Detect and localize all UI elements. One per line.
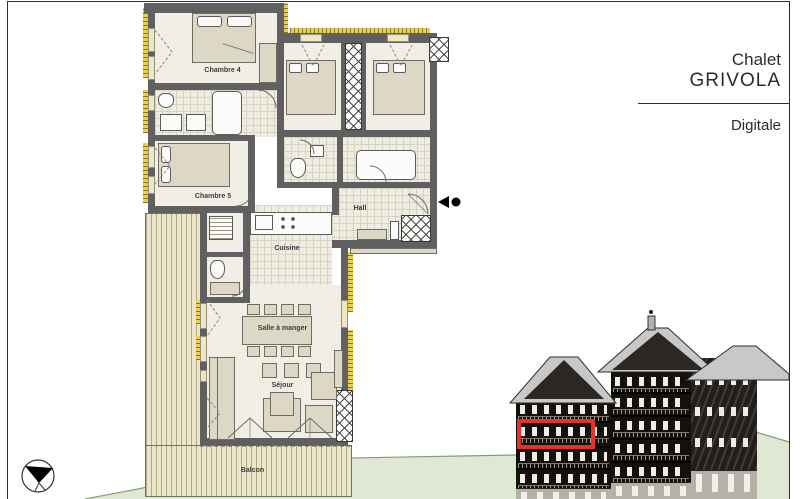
wall <box>148 83 284 90</box>
wall <box>207 252 250 257</box>
elevation-floor-row <box>516 468 611 488</box>
window <box>148 28 155 52</box>
kitchen-sink <box>255 215 273 230</box>
gable-window <box>564 374 578 392</box>
wall <box>284 182 437 188</box>
pillow <box>161 166 171 183</box>
terrain-fill-right <box>756 432 789 499</box>
chair <box>281 304 294 315</box>
chair <box>247 304 260 315</box>
pillow <box>227 16 252 27</box>
sofa <box>209 357 235 440</box>
window <box>200 303 207 329</box>
wall <box>284 130 437 137</box>
wall <box>337 137 343 188</box>
bathtub <box>212 91 242 135</box>
chair <box>281 346 294 357</box>
balcony-railing <box>613 432 689 437</box>
gable-window <box>641 345 654 365</box>
balcony-deck-left <box>145 213 202 447</box>
elevation-ground-floor <box>611 482 691 499</box>
wall <box>200 213 207 445</box>
chalet-title-line2: GRIVOLA <box>600 70 781 92</box>
washbasin <box>160 114 182 131</box>
apartment-name: Digitale <box>600 117 781 134</box>
elevation-floor-row <box>611 461 691 482</box>
wall <box>332 188 339 215</box>
window <box>148 95 155 111</box>
window-band <box>615 398 687 407</box>
page-border-top <box>7 1 790 2</box>
shower <box>209 216 233 240</box>
armchair <box>305 405 333 433</box>
ground-windows <box>616 486 686 496</box>
gable-window <box>657 345 670 365</box>
window <box>148 56 155 80</box>
balcony-railing <box>613 409 689 414</box>
wall <box>200 297 250 303</box>
window-band <box>615 421 687 430</box>
elevation-floor-row <box>611 438 691 461</box>
window-band <box>520 474 607 483</box>
chair <box>298 304 311 315</box>
window <box>341 300 348 328</box>
toilet <box>290 158 306 178</box>
window-band <box>695 438 753 447</box>
ground-windows <box>521 492 606 499</box>
wall <box>248 135 255 212</box>
room-label-salle-a-manger: Salle à manger <box>245 325 320 332</box>
window <box>148 176 155 194</box>
insulation-strip <box>284 3 288 33</box>
stove-burners <box>278 215 298 231</box>
window-band <box>615 377 687 386</box>
window-band <box>520 405 607 414</box>
title-divider <box>638 103 789 104</box>
terrain-line-right <box>756 432 789 442</box>
window-band <box>520 452 607 461</box>
pillow <box>289 63 302 73</box>
page-border-left <box>7 1 8 499</box>
chimney-finial <box>649 310 653 314</box>
bathtub <box>356 150 416 180</box>
stool <box>262 363 277 378</box>
page-border-right <box>789 1 790 499</box>
highlight-rectangle <box>517 419 595 449</box>
elevation-floor-row <box>516 446 611 468</box>
chair <box>247 346 260 357</box>
shaft-hatch <box>429 37 449 62</box>
tv-sideboard <box>334 350 343 388</box>
washbasin <box>310 145 324 157</box>
elevation-ground-floor <box>516 488 611 499</box>
room-label-chambre5: Chambre 5 <box>178 193 248 200</box>
pillow <box>197 16 222 27</box>
wall <box>148 135 255 141</box>
pillow <box>161 146 171 163</box>
room-label-cuisine: Cuisine <box>262 245 312 252</box>
room-label-hall: Hall <box>345 205 375 212</box>
elevation-floor-row <box>611 415 691 438</box>
gable-window <box>546 374 560 392</box>
elevation-ground-floor <box>691 470 757 499</box>
pillow <box>306 63 319 73</box>
wall <box>362 43 366 130</box>
wall <box>430 33 437 248</box>
window <box>300 34 322 42</box>
room-label-sejour: Séjour <box>255 382 310 389</box>
window <box>387 34 409 42</box>
window <box>148 146 155 168</box>
chair <box>264 346 277 357</box>
entrance-marker <box>438 196 461 208</box>
chimney <box>648 316 655 330</box>
wall <box>144 3 284 13</box>
elevation-side-wall <box>691 358 757 470</box>
room-label-balcon: Balcon <box>225 467 280 474</box>
window-band <box>615 444 687 453</box>
window <box>200 336 207 362</box>
north-arrow-icon <box>22 460 54 492</box>
shaft-hatch <box>345 43 362 130</box>
chimney-hatch <box>336 390 353 442</box>
wall <box>148 206 255 213</box>
wall <box>243 212 250 302</box>
wall <box>277 3 284 188</box>
hall-cabinet <box>390 221 399 240</box>
washing-machine <box>186 114 206 131</box>
window-band <box>695 376 753 385</box>
elevation-floor-row <box>516 399 611 421</box>
chalet-title-line1: Chalet <box>600 50 781 70</box>
stool <box>284 363 299 378</box>
toilet <box>210 260 225 279</box>
pillow <box>393 63 406 73</box>
pillow <box>376 63 389 73</box>
hall-bench <box>357 229 387 240</box>
window-band <box>615 467 687 476</box>
roof-left <box>510 357 616 403</box>
side-table <box>270 392 294 416</box>
wardrobe <box>259 43 277 83</box>
elevation-floor-row <box>611 392 691 415</box>
insulation-strip <box>348 252 353 312</box>
drawing-sheet: Chalet GRIVOLA Digitale <box>0 0 800 499</box>
window-band <box>695 407 753 416</box>
window <box>200 370 207 382</box>
shaft-hatch <box>401 215 431 242</box>
elevation-floor-row <box>611 371 691 392</box>
toilet <box>158 93 174 108</box>
threshold-band <box>350 248 437 254</box>
storage-cupboard <box>210 282 240 295</box>
balcony-railing <box>613 455 689 460</box>
ground-windows <box>696 474 752 492</box>
chair <box>264 304 277 315</box>
room-label-chambre4: Chambre 4 <box>180 67 265 74</box>
chair <box>298 346 311 357</box>
